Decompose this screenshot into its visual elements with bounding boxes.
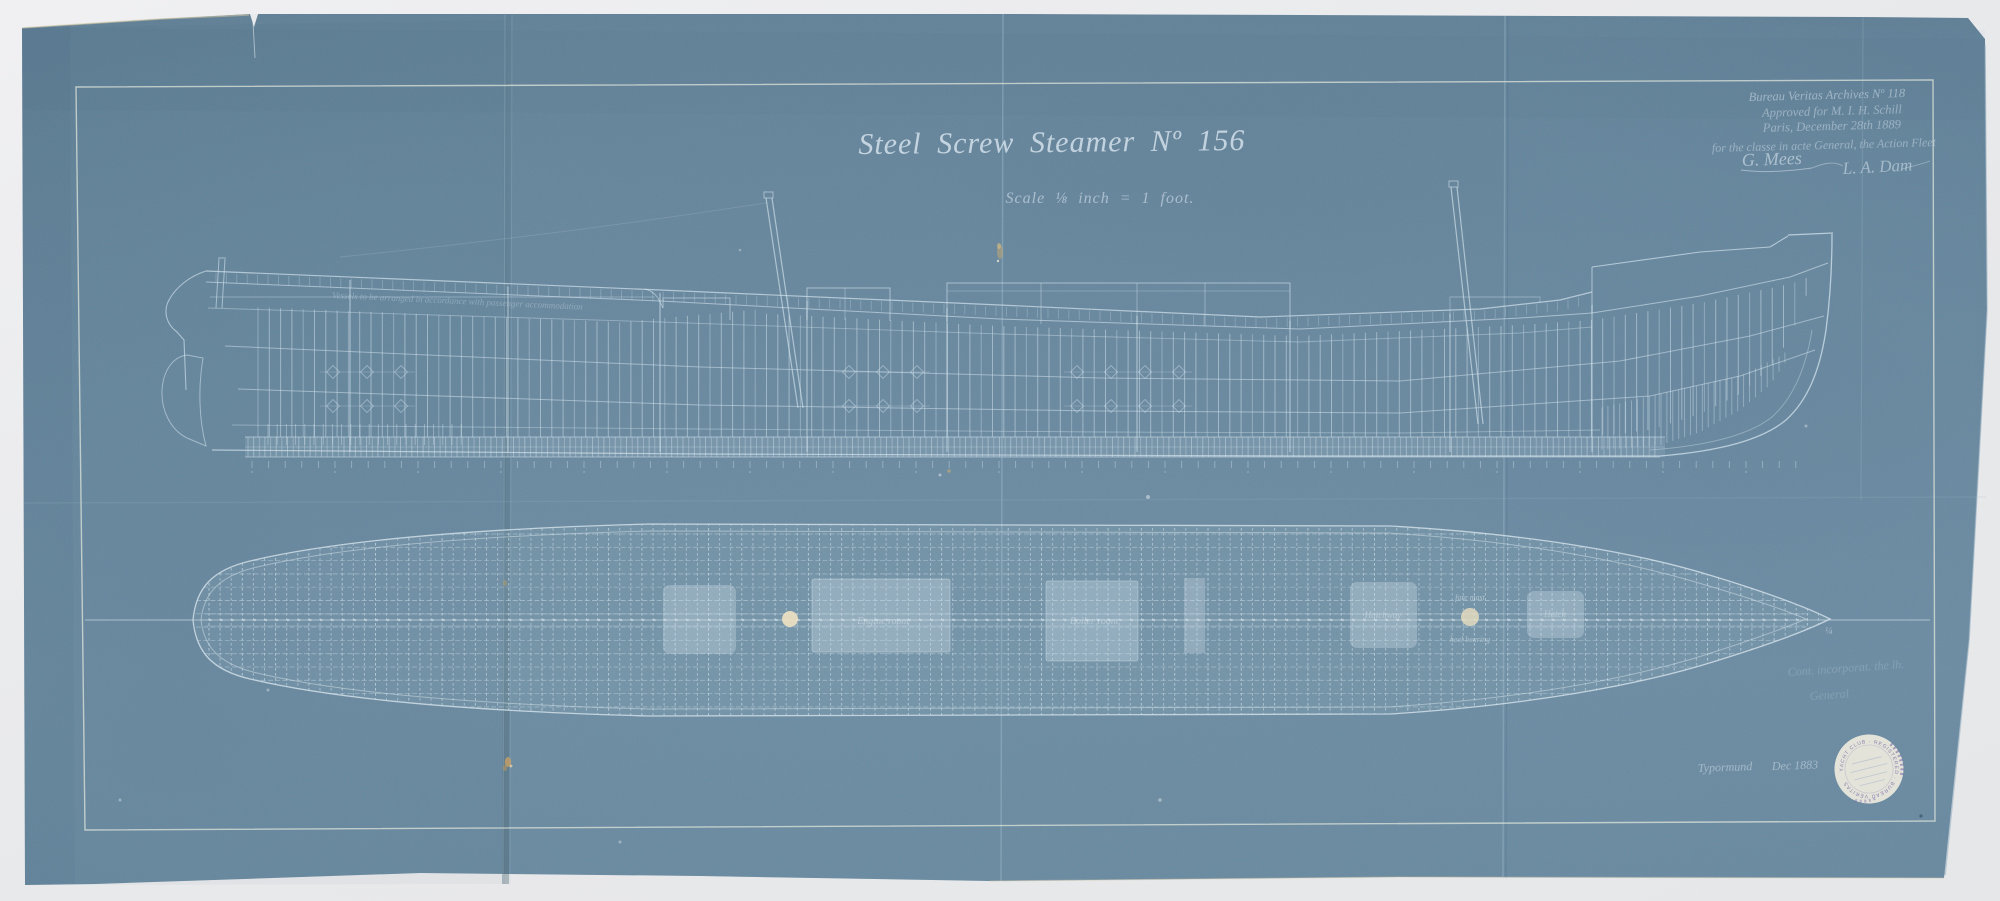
svg-text:Steel Screw Steamer Nº 156: Steel Screw Steamer Nº 156: [858, 124, 1245, 161]
svg-text:Scale ⅛ inch = 1 foot.: Scale ⅛ inch = 1 foot.: [1006, 190, 1195, 207]
svg-text:heel bearing: heel bearing: [1450, 635, 1490, 644]
svg-text:Dec 1883: Dec 1883: [1771, 757, 1819, 773]
svg-text:fore mast: fore mast: [1455, 593, 1485, 602]
svg-text:Boiler room: Boiler room: [1070, 616, 1118, 627]
svg-text:Hatch: Hatch: [1543, 609, 1566, 619]
svg-text:Typormund: Typormund: [1698, 759, 1754, 775]
svg-text:G. Mees: G. Mees: [1741, 148, 1802, 170]
svg-text:General: General: [1809, 686, 1850, 703]
svg-text:L. A. Dam: L. A. Dam: [1841, 155, 1912, 178]
svg-text:Hatchway: Hatchway: [1364, 610, 1402, 620]
svg-text:¼: ¼: [1825, 626, 1833, 637]
svg-text:Engine room: Engine room: [856, 616, 909, 627]
